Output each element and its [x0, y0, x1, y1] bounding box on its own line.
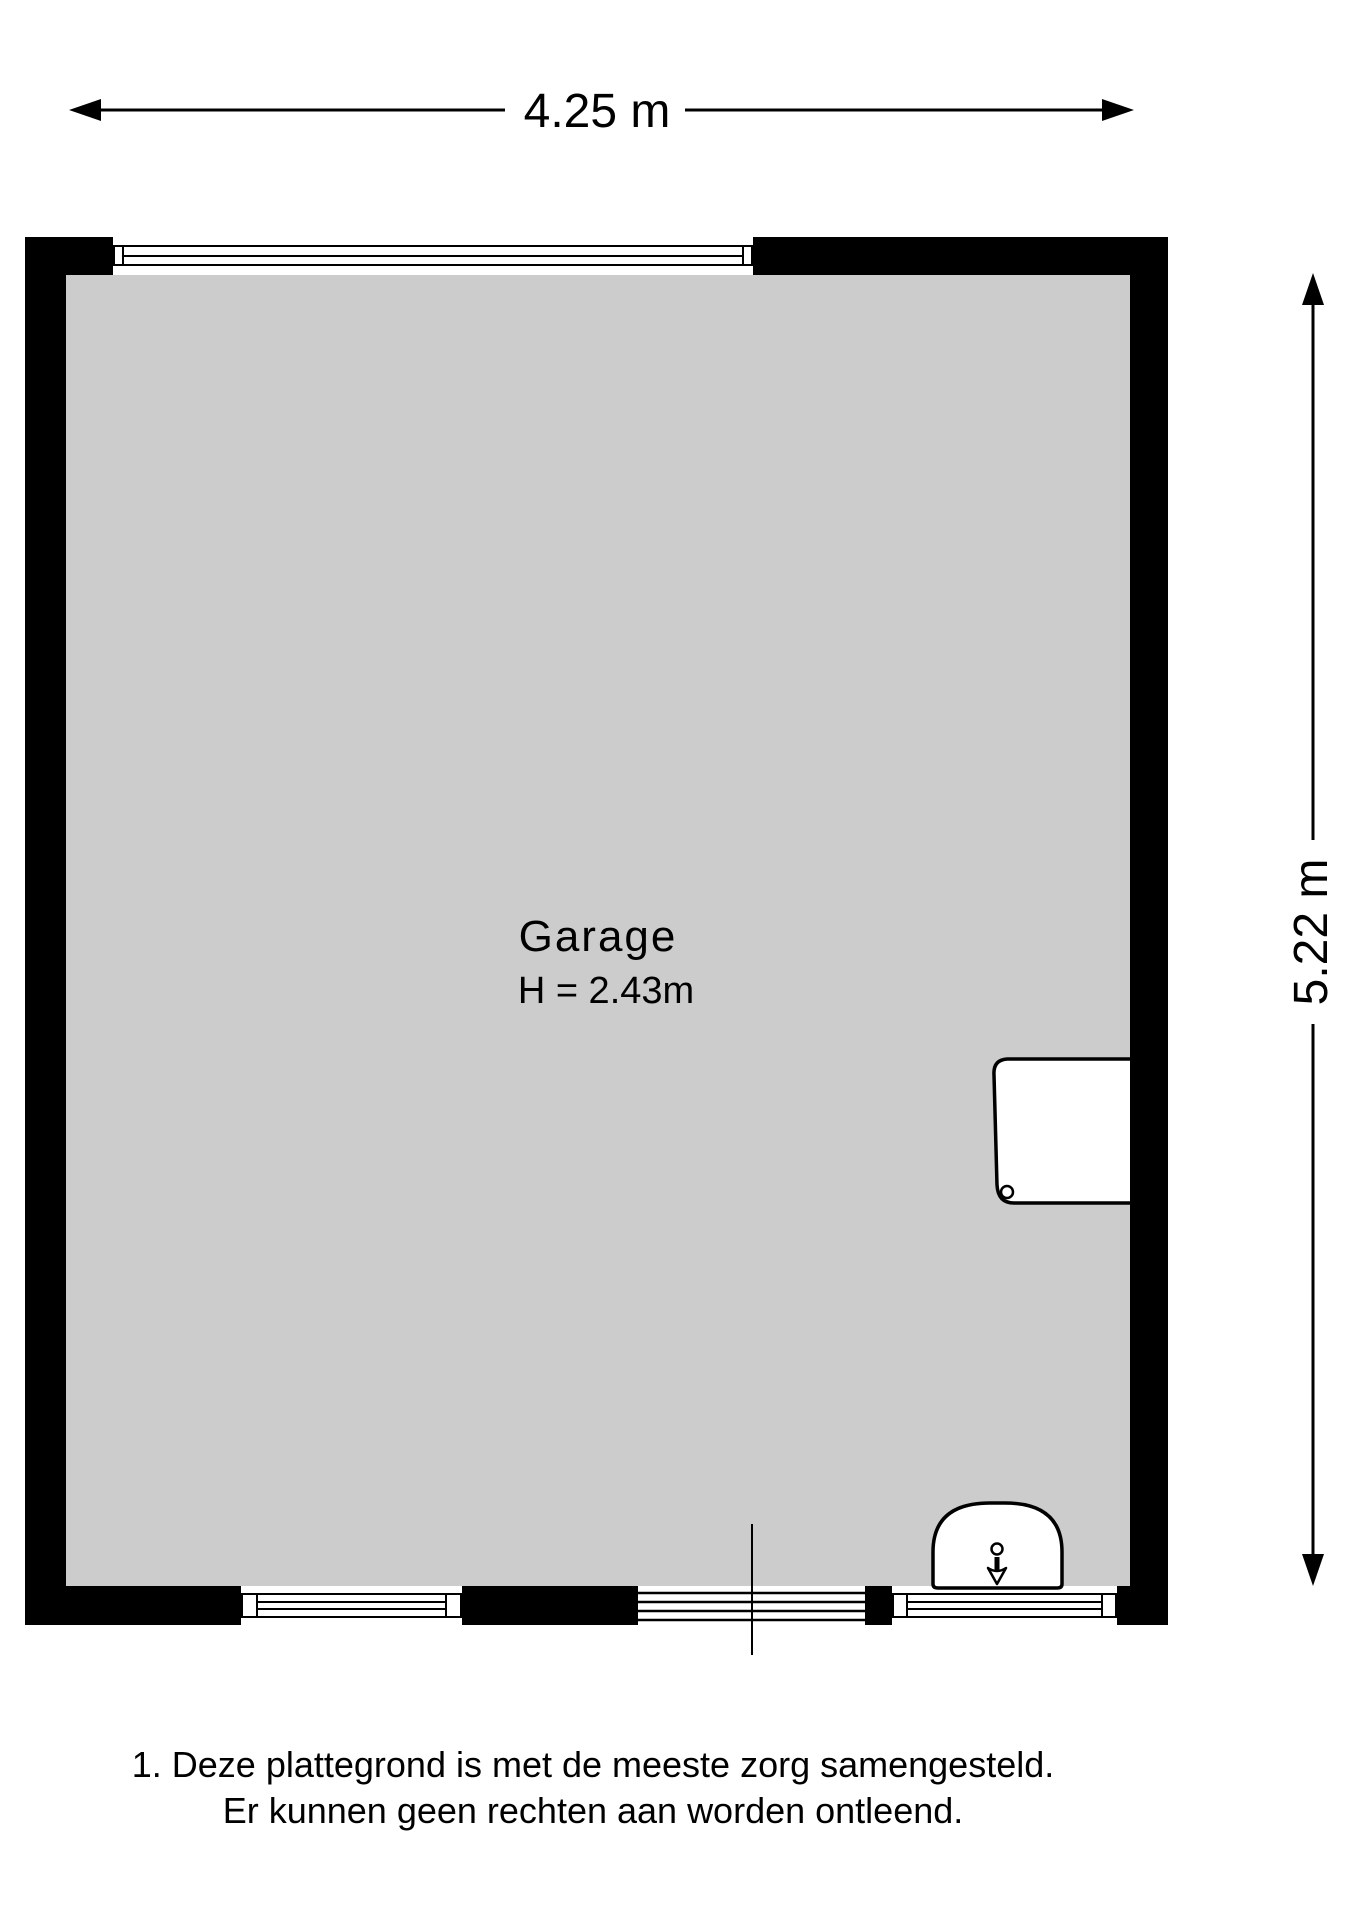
boiler-glyph-circle-icon: [992, 1544, 1003, 1555]
boiler-fixture: [933, 1503, 1062, 1588]
wall-left: [25, 237, 66, 1625]
window-bottom-right-opening: [892, 1586, 1117, 1625]
side-door: [994, 1059, 1130, 1203]
window-bottom-left: [241, 1586, 462, 1625]
wall-bottom-left-segment: [25, 1586, 241, 1625]
arrowhead-right-icon: [1102, 99, 1134, 121]
disclaimer-line-2: Er kunnen geen rechten aan worden ontlee…: [223, 1790, 964, 1831]
floorplan-canvas: 4.25 m 5.22 m: [0, 0, 1358, 1920]
wall-bottom-right-segment: [1117, 1586, 1168, 1625]
width-dimension-label: 4.25 m: [524, 85, 671, 138]
window-bottom-right: [892, 1586, 1117, 1625]
floorplan-page: 4.25 m 5.22 m: [0, 0, 1358, 1920]
room-name-label: Garage: [519, 912, 678, 961]
arrowhead-left-icon: [69, 99, 101, 121]
depth-dimension: 5.22 m: [1285, 273, 1338, 1586]
window-top: [113, 237, 753, 275]
disclaimer-line-1: 1. Deze plattegrond is met de meeste zor…: [132, 1744, 1055, 1785]
wall-top-left-segment: [25, 237, 113, 275]
wall-right: [1130, 237, 1168, 1625]
depth-dimension-label: 5.22 m: [1285, 859, 1338, 1006]
wall-bottom-post: [865, 1586, 892, 1625]
room-height-label: H = 2.43m: [518, 970, 694, 1012]
window-bottom-left-opening: [241, 1586, 462, 1625]
arrowhead-up-icon: [1302, 273, 1324, 305]
arrowhead-down-icon: [1302, 1554, 1324, 1586]
wall-top-right-segment: [753, 237, 1168, 275]
side-door-handle-icon: [1001, 1186, 1013, 1198]
wall-bottom-middle-segment: [462, 1586, 638, 1625]
side-door-leaf: [994, 1059, 1130, 1203]
width-dimension: 4.25 m: [69, 85, 1134, 138]
